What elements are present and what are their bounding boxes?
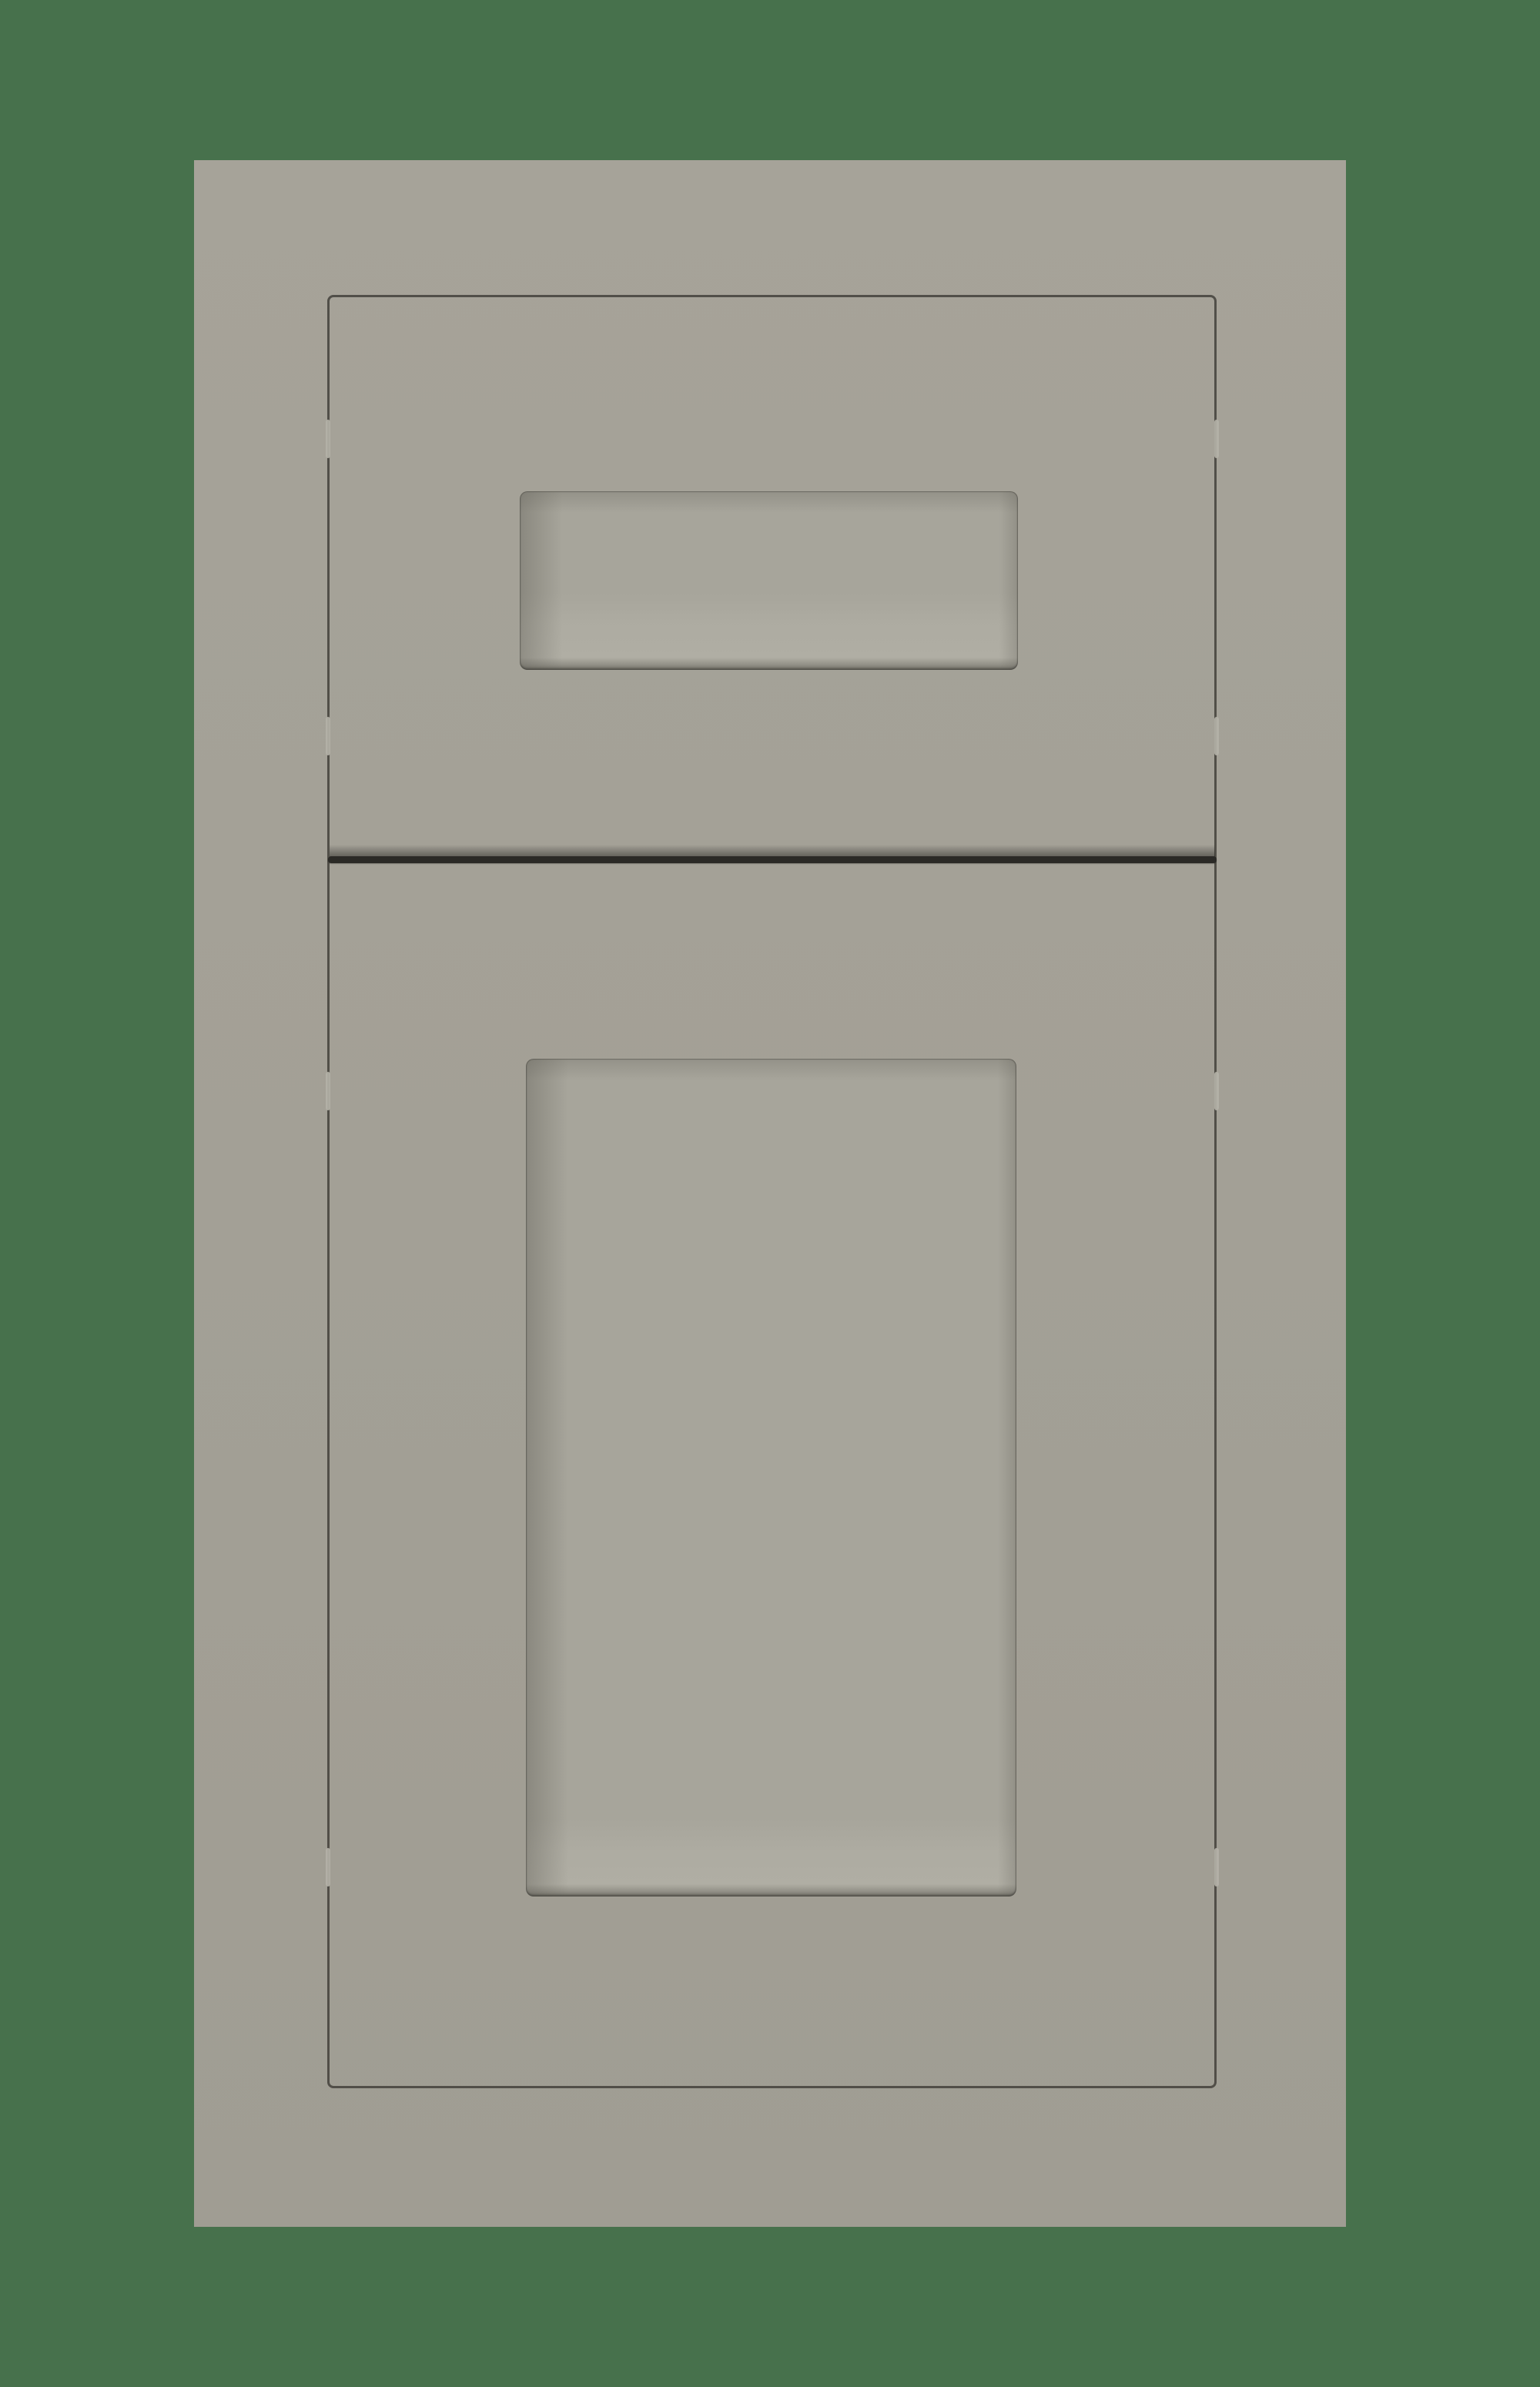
frame-notch-right-upper bbox=[1214, 717, 1219, 755]
frame-notch-left-lower bbox=[326, 1072, 330, 1110]
frame-notch-left-bottom bbox=[326, 1848, 330, 1886]
drawer-front-recessed-panel bbox=[520, 491, 1018, 670]
frame-notch-right-bottom bbox=[1214, 1848, 1219, 1886]
cabinet-sample bbox=[194, 160, 1346, 2227]
drawer-door-gap-shadow bbox=[330, 845, 1215, 857]
frame-notch-right-lower bbox=[1214, 1072, 1219, 1110]
photo-background bbox=[0, 0, 1540, 2387]
frame-notch-left-upper bbox=[326, 717, 330, 755]
door-front-recessed-panel bbox=[526, 1059, 1016, 1897]
frame-notch-right-top bbox=[1214, 420, 1219, 458]
frame-notch-left-top bbox=[326, 420, 330, 458]
drawer-door-gap bbox=[328, 856, 1217, 863]
